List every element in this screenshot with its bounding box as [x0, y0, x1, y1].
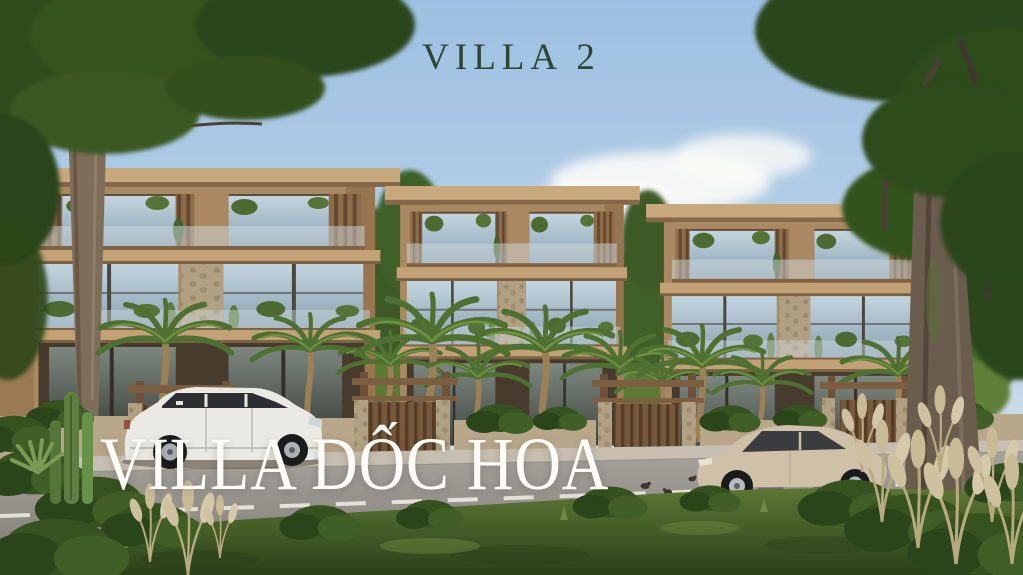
slide-heading: VILLA 2: [0, 36, 1023, 79]
villa-marketing-slide: VILLA 2 VILLA DỐC HOA: [0, 0, 1023, 575]
project-title: VILLA DỐC HOA: [100, 427, 609, 502]
